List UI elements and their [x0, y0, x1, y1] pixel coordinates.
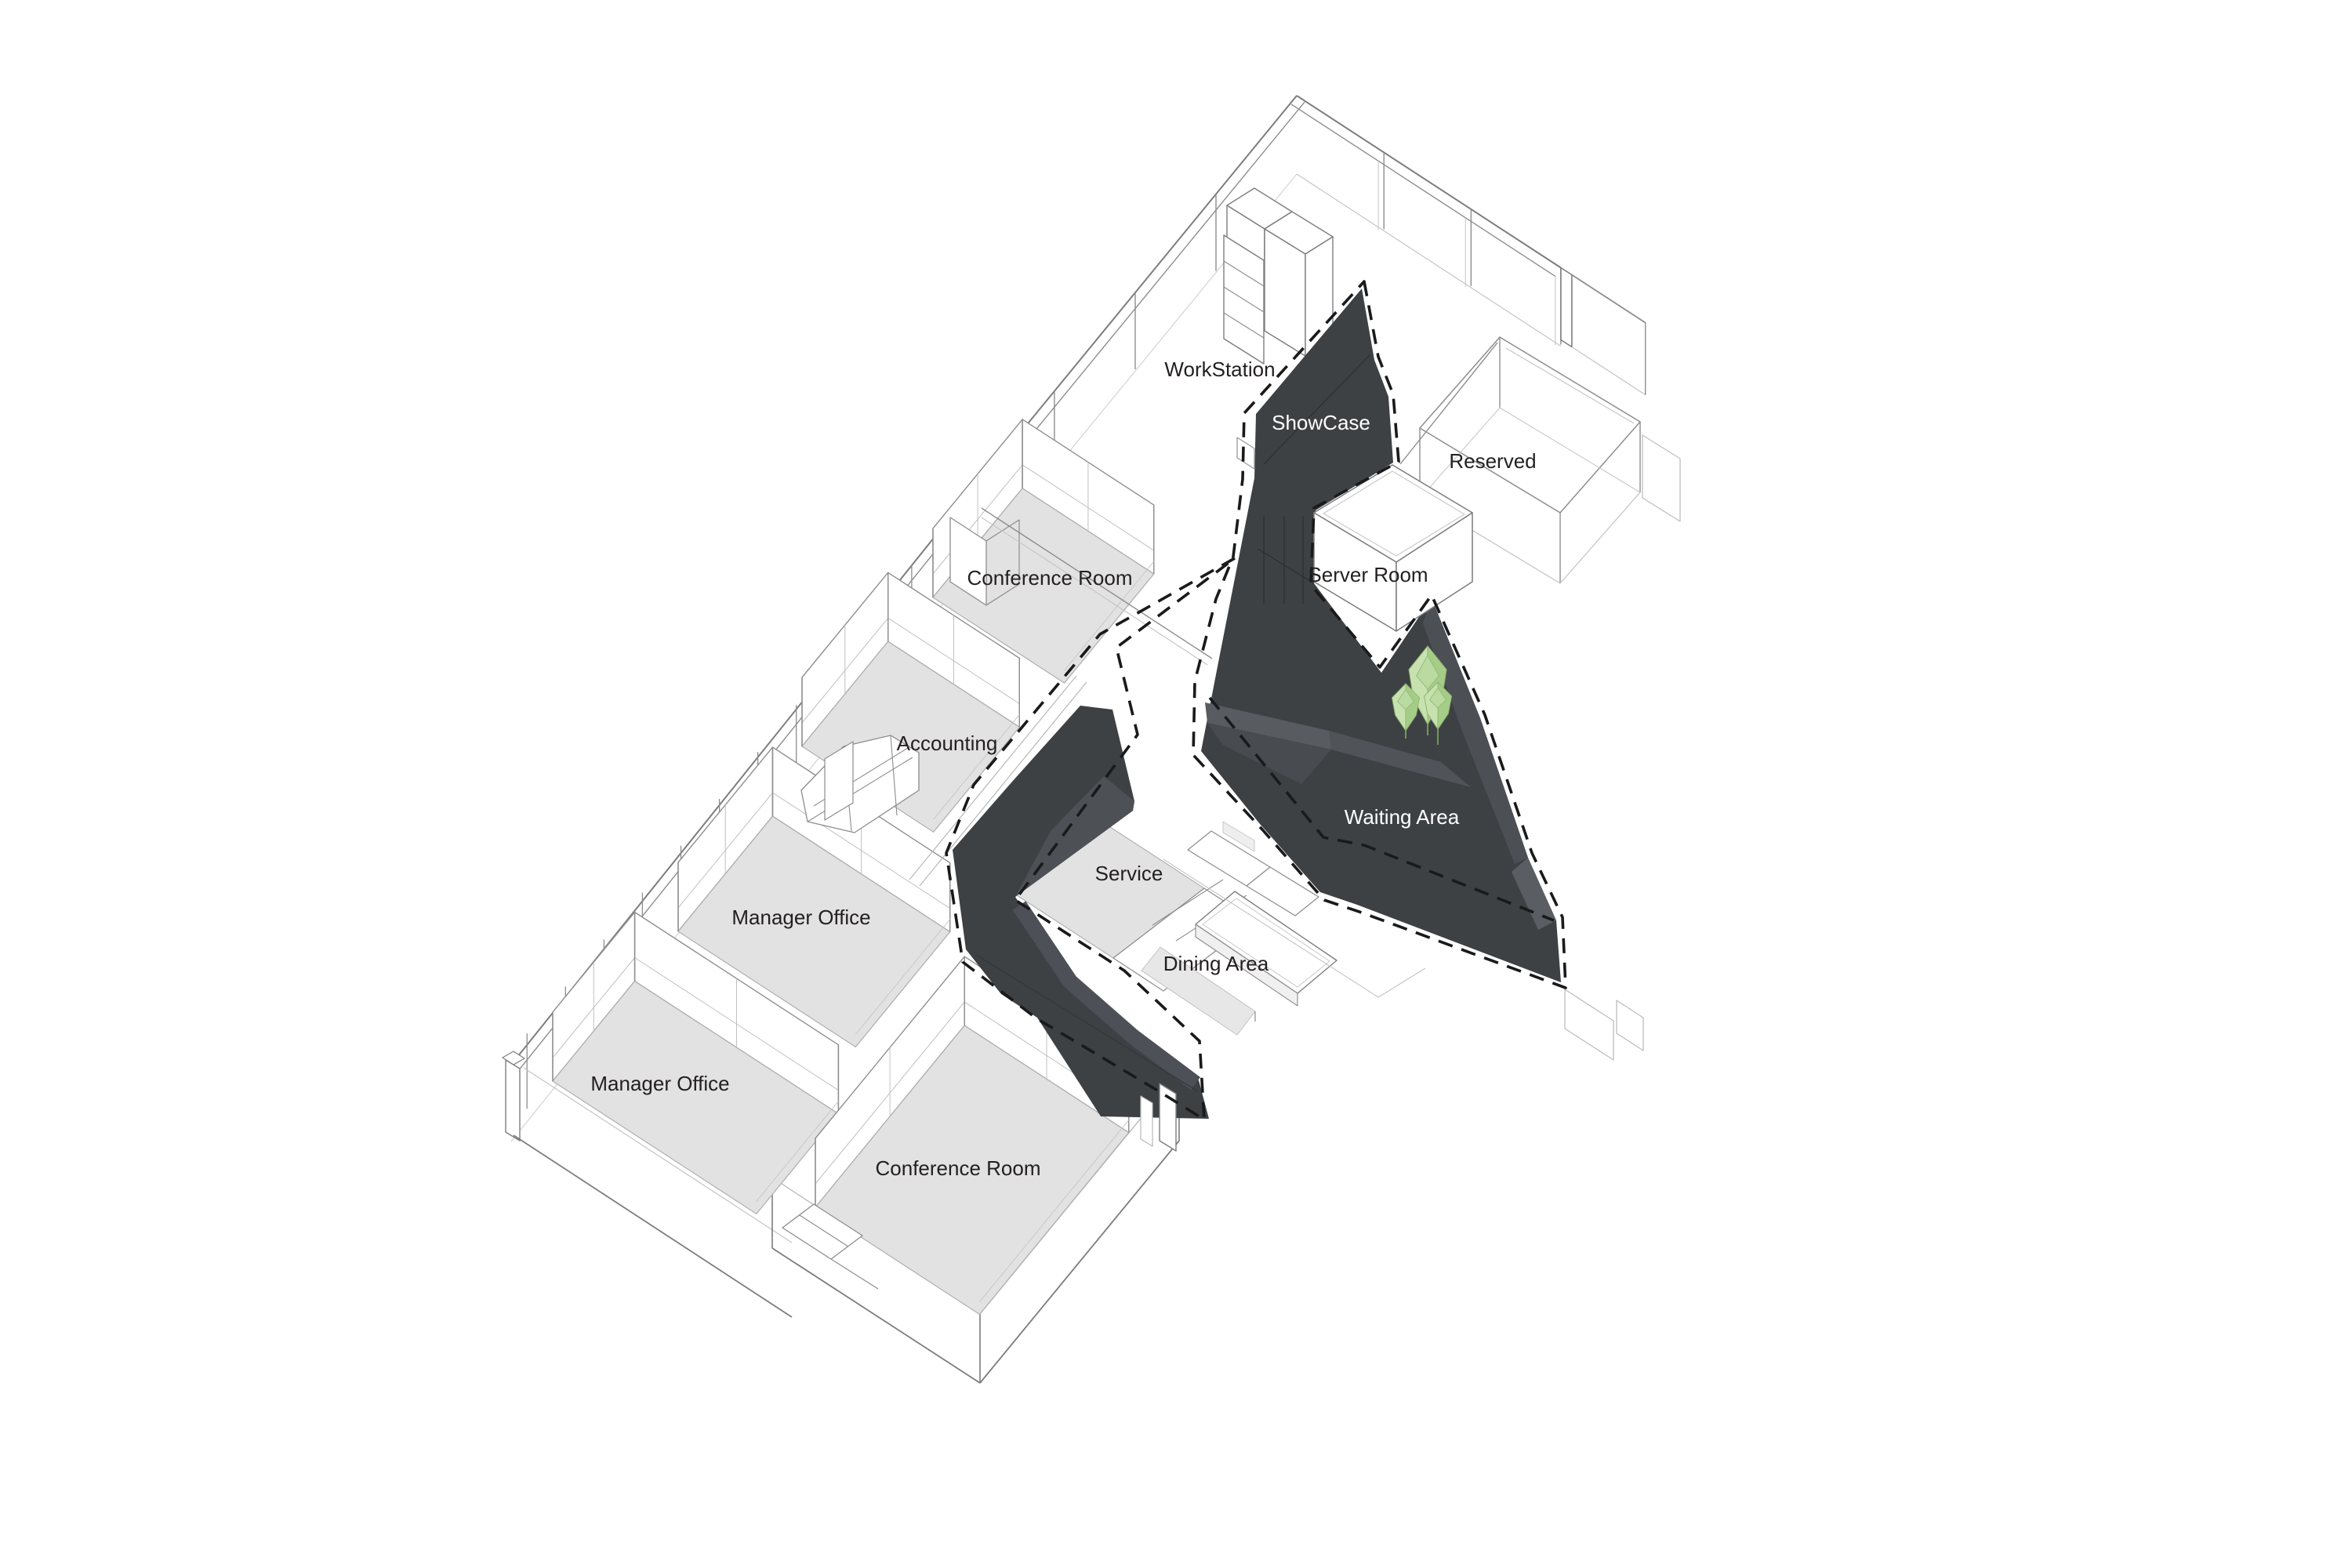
svg-text:Service: Service — [1095, 862, 1163, 885]
svg-text:Dining Area: Dining Area — [1163, 952, 1269, 975]
svg-text:WorkStation: WorkStation — [1164, 358, 1275, 381]
svg-text:ShowCase: ShowCase — [1272, 411, 1370, 434]
svg-text:Manager Office: Manager Office — [590, 1072, 729, 1095]
svg-text:Conference Room: Conference Room — [876, 1156, 1041, 1180]
svg-text:Conference Room: Conference Room — [967, 566, 1133, 590]
svg-text:Server Room: Server Room — [1308, 563, 1428, 586]
svg-text:Waiting Area: Waiting Area — [1345, 805, 1460, 829]
svg-text:Reserved: Reserved — [1449, 449, 1536, 473]
svg-text:Accounting: Accounting — [897, 731, 998, 755]
svg-text:Manager Office: Manager Office — [731, 906, 870, 929]
